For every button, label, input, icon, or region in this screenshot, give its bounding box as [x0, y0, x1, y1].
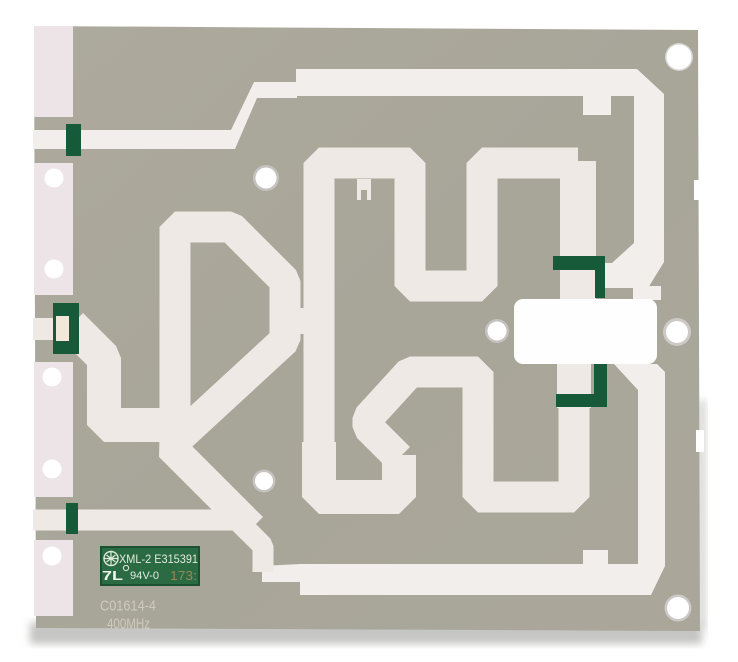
svg-text:94V-0: 94V-0 — [130, 570, 159, 582]
svg-text:7L: 7L — [102, 568, 123, 583]
svg-text:173:: 173: — [170, 568, 197, 583]
svg-text:C01614-4: C01614-4 — [100, 598, 156, 615]
svg-text:XML-2 E315391: XML-2 E315391 — [119, 552, 198, 566]
svg-text:400MHz: 400MHz — [107, 616, 150, 633]
